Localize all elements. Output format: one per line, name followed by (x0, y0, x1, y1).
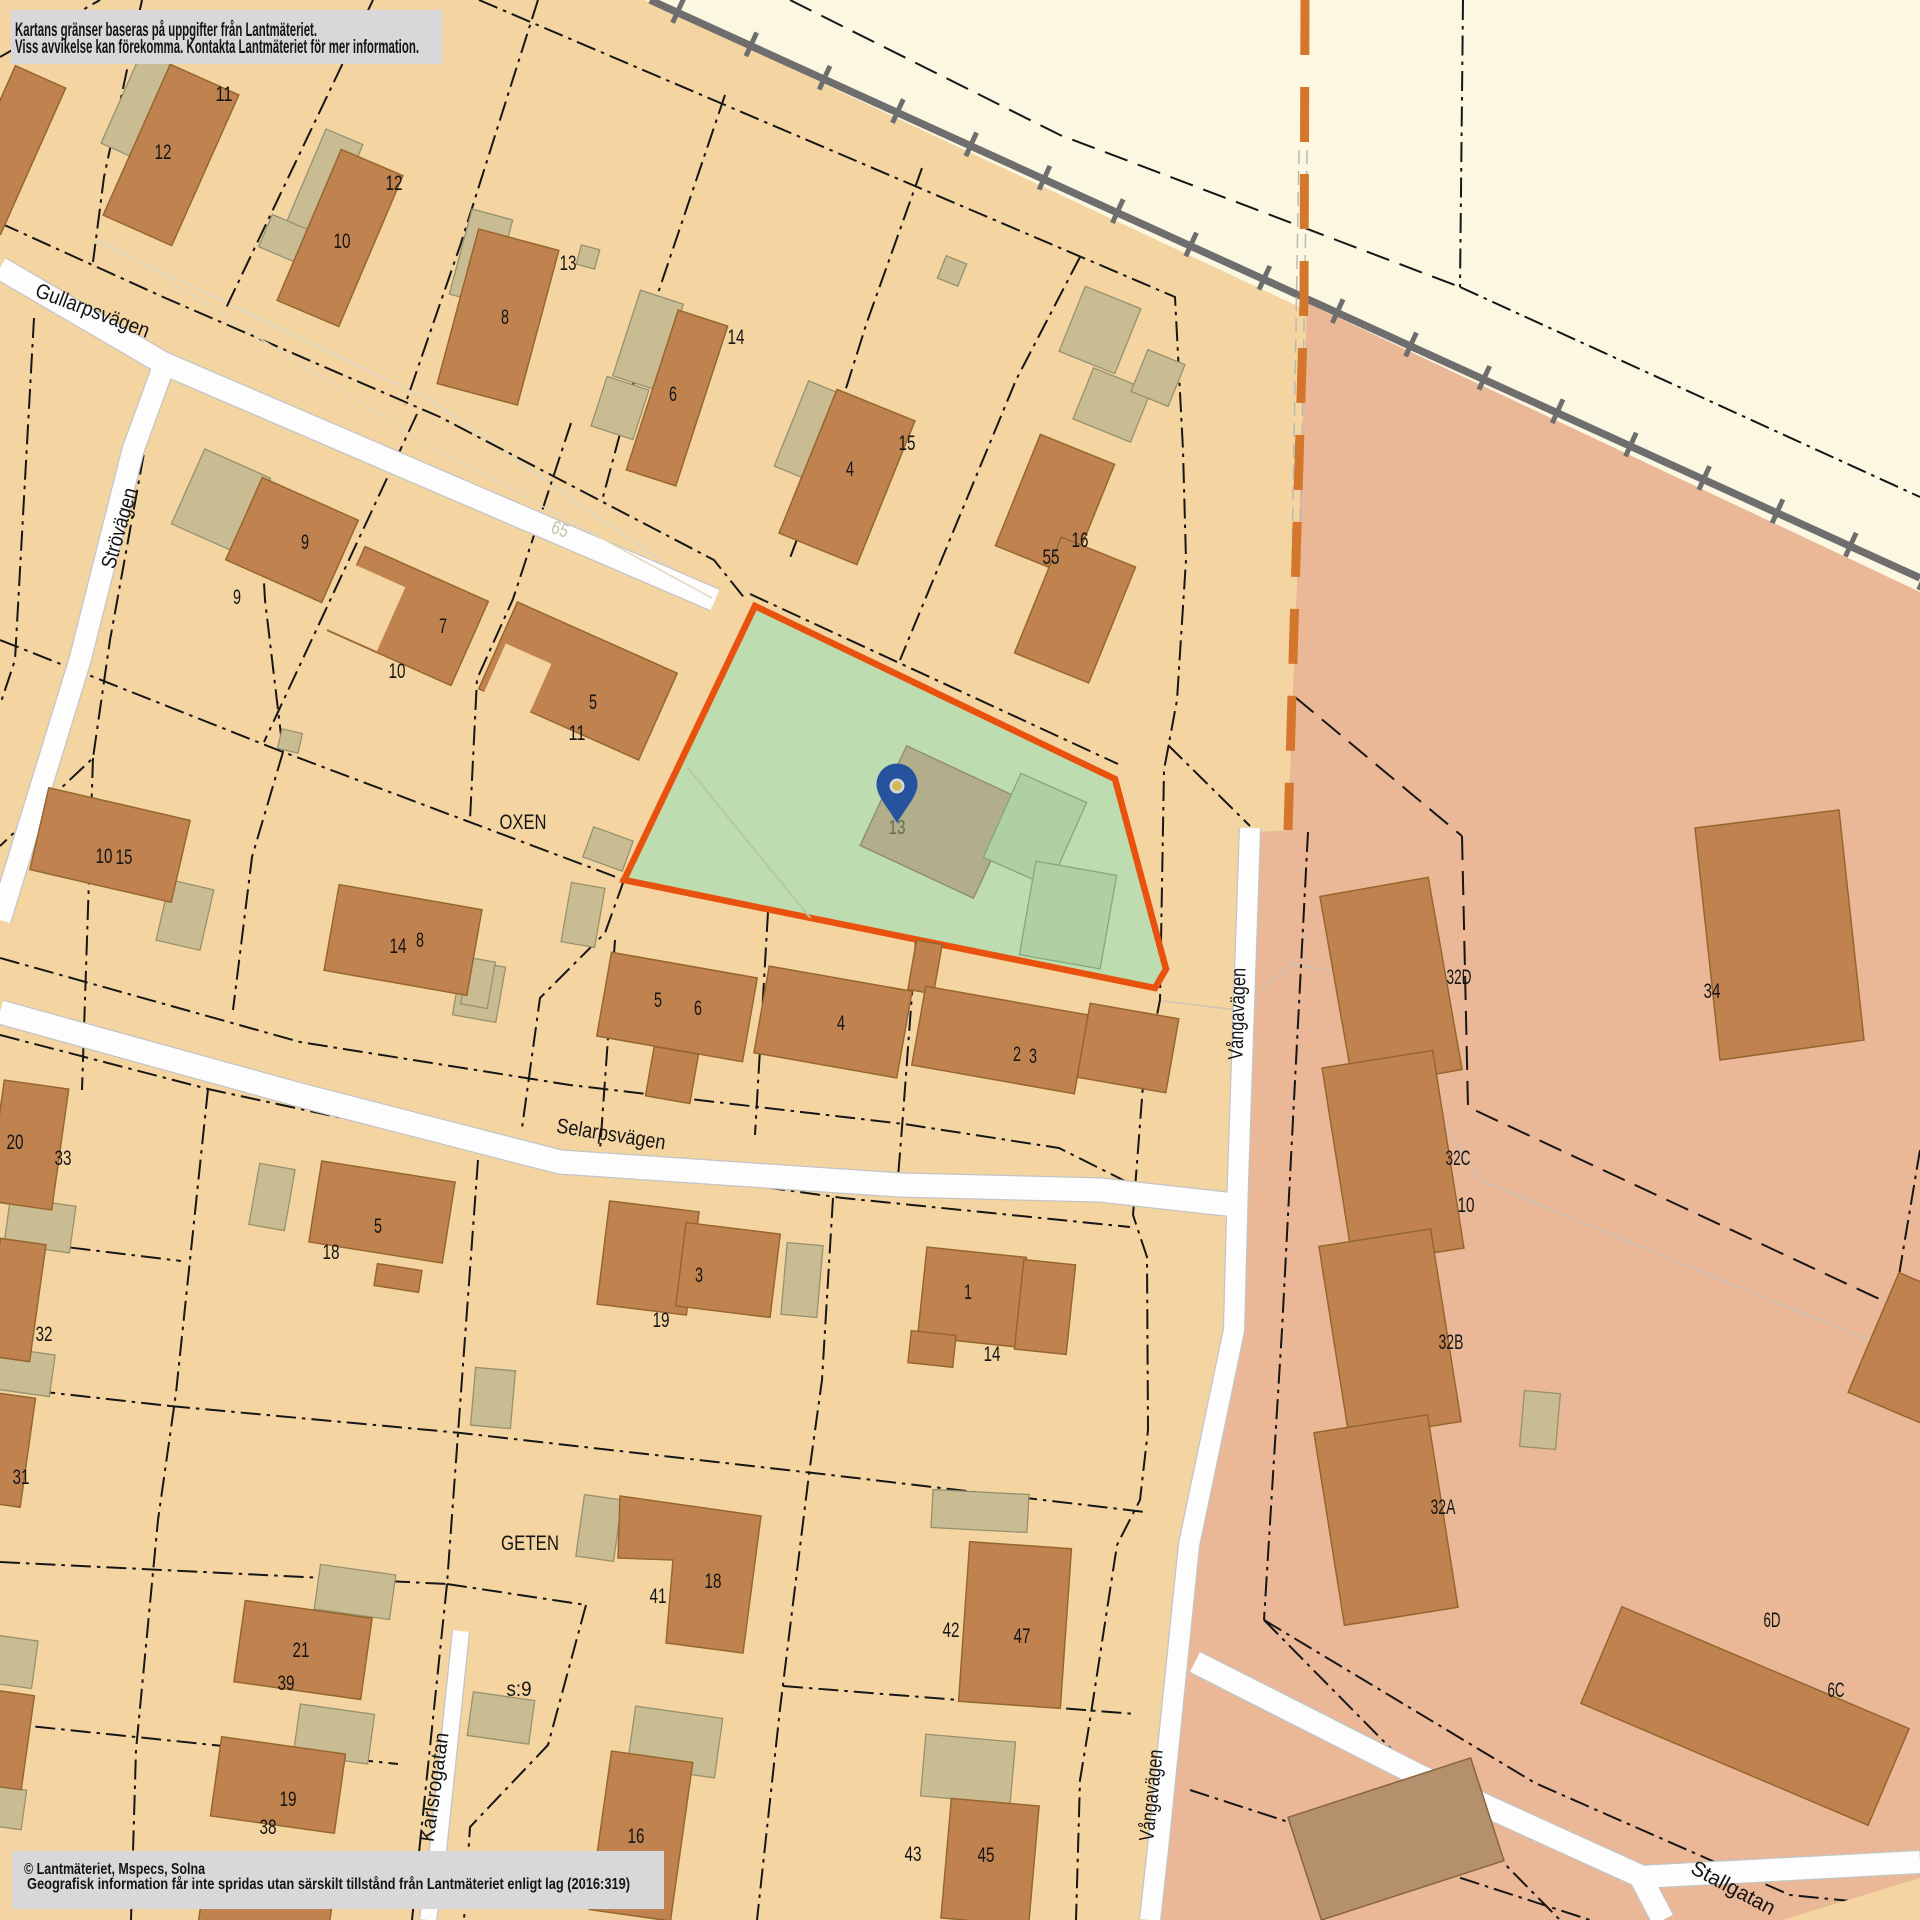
svg-text:15: 15 (899, 432, 916, 455)
svg-text:6: 6 (694, 997, 702, 1020)
svg-text:GETEN: GETEN (501, 1532, 559, 1555)
svg-text:19: 19 (653, 1309, 670, 1332)
svg-text:3: 3 (695, 1264, 703, 1287)
svg-text:42: 42 (943, 1619, 960, 1642)
svg-text:20: 20 (7, 1131, 24, 1154)
svg-text:7: 7 (439, 615, 447, 638)
svg-text:s:9: s:9 (507, 1678, 532, 1701)
svg-text:16: 16 (628, 1825, 645, 1848)
svg-text:5: 5 (374, 1215, 382, 1238)
svg-text:8: 8 (416, 929, 424, 952)
svg-text:33: 33 (55, 1147, 72, 1170)
svg-text:43: 43 (905, 1843, 922, 1866)
svg-text:5: 5 (654, 989, 662, 1012)
svg-text:32B: 32B (1439, 1331, 1464, 1354)
svg-text:18: 18 (323, 1241, 340, 1264)
svg-text:16: 16 (1072, 529, 1089, 552)
svg-text:10: 10 (389, 660, 406, 683)
svg-text:Viss avvikelse kan förekomma.: Viss avvikelse kan förekomma. Kontakta L… (15, 37, 419, 58)
svg-text:1: 1 (964, 1281, 972, 1304)
svg-text:32A: 32A (1431, 1496, 1456, 1519)
svg-text:32D: 32D (1447, 966, 1472, 989)
svg-text:2: 2 (1013, 1043, 1021, 1066)
svg-text:21: 21 (293, 1639, 310, 1662)
svg-text:9: 9 (233, 586, 241, 609)
svg-text:14: 14 (390, 935, 407, 958)
svg-text:10: 10 (96, 845, 113, 868)
svg-text:34: 34 (1704, 980, 1721, 1003)
svg-text:6D: 6D (1764, 1609, 1781, 1632)
svg-text:9: 9 (301, 531, 309, 554)
svg-text:14: 14 (728, 326, 745, 349)
svg-text:11: 11 (216, 83, 233, 106)
svg-text:8: 8 (501, 306, 509, 329)
svg-text:12: 12 (155, 141, 172, 164)
svg-text:OXEN: OXEN (500, 811, 547, 834)
svg-text:6C: 6C (1828, 1679, 1845, 1702)
svg-text:5: 5 (589, 691, 597, 714)
svg-text:45: 45 (978, 1844, 995, 1867)
svg-text:31: 31 (13, 1466, 30, 1489)
svg-text:Vångavägen: Vångavägen (1224, 967, 1250, 1060)
svg-text:15: 15 (116, 846, 133, 869)
svg-text:6: 6 (669, 383, 677, 406)
svg-text:47: 47 (1014, 1625, 1031, 1648)
svg-text:11: 11 (569, 722, 586, 745)
svg-text:13: 13 (560, 252, 577, 275)
svg-text:10: 10 (334, 230, 351, 253)
svg-text:39: 39 (278, 1672, 295, 1695)
svg-text:18: 18 (705, 1570, 722, 1593)
svg-text:55: 55 (1043, 546, 1060, 569)
svg-text:38: 38 (260, 1816, 277, 1839)
svg-text:Geografisk information får int: Geografisk information får inte spridas … (27, 1875, 630, 1893)
svg-text:32C: 32C (1446, 1147, 1471, 1170)
svg-text:19: 19 (280, 1788, 297, 1811)
svg-text:12: 12 (386, 172, 403, 195)
svg-text:14: 14 (984, 1343, 1001, 1366)
svg-text:4: 4 (846, 458, 854, 481)
svg-text:4: 4 (837, 1012, 845, 1035)
svg-text:10: 10 (1458, 1194, 1475, 1217)
svg-text:41: 41 (650, 1585, 667, 1608)
svg-text:3: 3 (1029, 1045, 1037, 1068)
svg-text:32: 32 (36, 1323, 53, 1346)
